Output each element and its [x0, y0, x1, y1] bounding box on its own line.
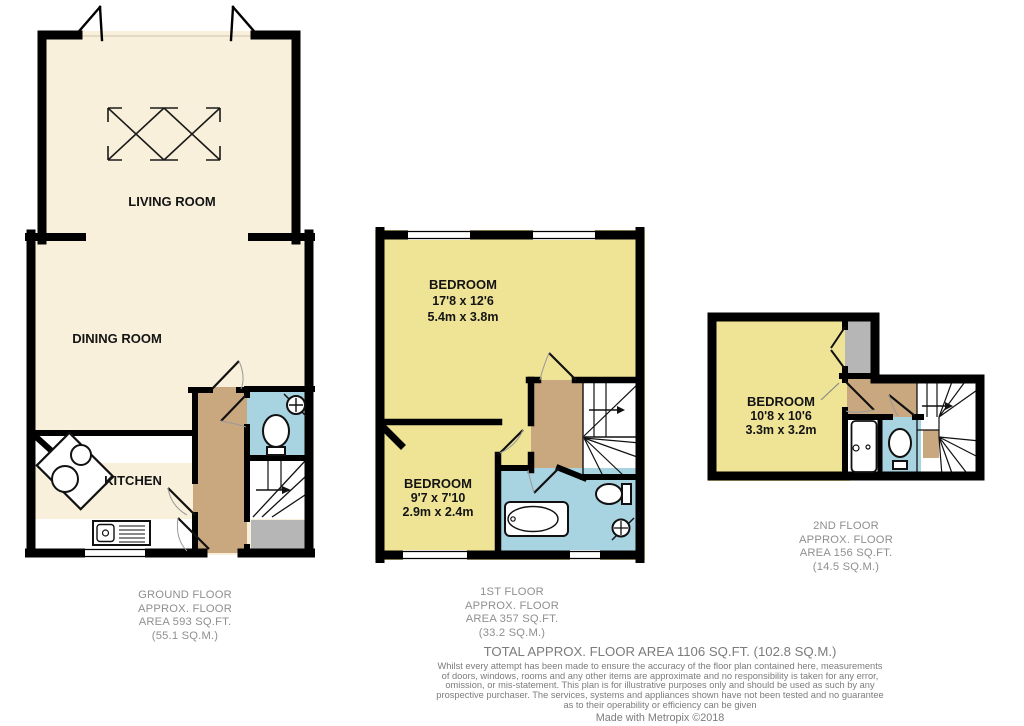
- first-floor-caption: 1ST FLOOR APPROX. FLOOR AREA 357 SQ.FT. …: [402, 586, 622, 640]
- caption-line: AREA 593 SQ.FT.: [75, 616, 295, 630]
- first-floor-plan: BEDROOM 17'8 x 12'6 5.4m x 3.8m BEDROOM …: [372, 227, 648, 563]
- caption-line: (14.5 SQ.M.): [736, 561, 956, 575]
- room-label-bedroom: BEDROOM: [747, 394, 815, 409]
- total-area-text: TOTAL APPROX. FLOOR AREA 1106 SQ.FT. (10…: [330, 644, 990, 659]
- ground-floor-caption: GROUND FLOOR APPROX. FLOOR AREA 593 SQ.F…: [75, 589, 295, 643]
- caption-line: AREA 357 SQ.FT.: [402, 613, 622, 627]
- bedroom2-dims-imperial: 9'7 x 7'10: [411, 491, 466, 505]
- toilet-icon: [596, 484, 631, 504]
- caption-line: AREA 156 SQ.FT.: [736, 547, 956, 561]
- bedroom-dims-imperial: 10'8 x 10'6: [750, 409, 812, 423]
- caption-line: (33.2 SQ.M.): [402, 627, 622, 641]
- second-floor-plan: BEDROOM 10'8 x 10'6 3.3m x 3.2m: [703, 310, 987, 485]
- caption-line: GROUND FLOOR: [75, 589, 295, 603]
- ground-floor-plan: LIVING ROOM DINING ROOM KITCHEN: [25, 3, 315, 563]
- room-label-dining: DINING ROOM: [72, 331, 162, 346]
- caption-line: APPROX. FLOOR: [402, 600, 622, 614]
- caption-line: 2ND FLOOR: [736, 520, 956, 534]
- room-label-bedroom1: BEDROOM: [429, 277, 497, 292]
- bedroom1-dims-metric: 5.4m x 3.8m: [428, 310, 499, 324]
- footer: TOTAL APPROX. FLOOR AREA 1106 SQ.FT. (10…: [330, 644, 990, 724]
- caption-line: 1ST FLOOR: [402, 586, 622, 600]
- bathtub-icon: [505, 502, 568, 536]
- caption-line: APPROX. FLOOR: [736, 534, 956, 548]
- caption-line: APPROX. FLOOR: [75, 603, 295, 617]
- floorplan-page: LIVING ROOM DINING ROOM KITCHEN: [0, 0, 1024, 726]
- toilet-icon: [889, 429, 911, 469]
- caption-line: (55.1 SQ.M.): [75, 630, 295, 644]
- bedroom2-dims-metric: 2.9m x 2.4m: [403, 505, 474, 519]
- disclaimer: Whilst every attempt has been made to en…: [330, 662, 990, 711]
- second-floor-caption: 2ND FLOOR APPROX. FLOOR AREA 156 SQ.FT. …: [736, 520, 956, 574]
- disclaimer-line: as to their operability or efficiency ca…: [330, 701, 990, 711]
- toilet-icon: [263, 415, 289, 455]
- room-label-living: LIVING ROOM: [128, 194, 215, 209]
- metropix-credit: Made with Metropix ©2018: [330, 712, 990, 724]
- bedroom-dims-metric: 3.3m x 3.2m: [746, 423, 817, 437]
- room-label-bedroom2: BEDROOM: [404, 476, 472, 491]
- room-label-kitchen: KITCHEN: [104, 473, 162, 488]
- kitchen-sink-icon: [93, 521, 150, 545]
- shower-basin-unit-icon: [852, 421, 877, 472]
- bedroom1-dims-imperial: 17'8 x 12'6: [432, 294, 494, 308]
